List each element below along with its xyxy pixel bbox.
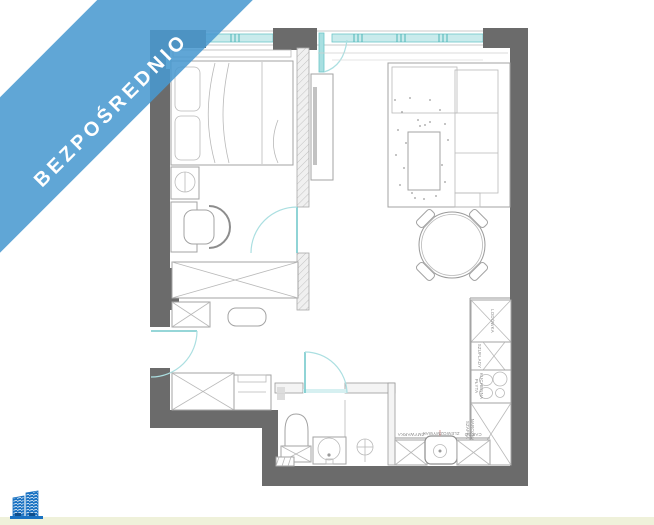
hall-partition <box>297 253 309 310</box>
fridge-label: LODÓWKA <box>490 309 495 333</box>
bathroom-wall-side <box>388 383 395 465</box>
bathroom-wall-box <box>277 387 285 393</box>
dining-set <box>415 208 489 282</box>
washbasin <box>313 437 346 464</box>
hallway <box>172 302 271 410</box>
living-room <box>388 63 510 282</box>
kitchen-bottom-run: ZMYWARKA ZLEWOZMYWAK CARGO <box>395 430 490 465</box>
sink-label: ZLEWOZMYWAK <box>423 431 460 436</box>
hall-dresser <box>234 375 271 410</box>
dishwasher-label: ZMYWARKA <box>398 432 425 437</box>
kitchen-sink: ZLEWOZMYWAK <box>423 430 460 464</box>
fridge: LODÓWKA <box>471 300 511 342</box>
screenshot-stage: LODÓWKA SZUFLADY PŁYTA KUCHENNA SZAFKA N… <box>0 0 654 525</box>
drawers-cabinet: SZUFLADY <box>471 342 511 370</box>
buildings-logo <box>9 487 49 521</box>
hall-wardrobe <box>172 373 234 410</box>
hall-cabinet-small <box>172 302 210 327</box>
coffee-table <box>408 132 440 190</box>
toilet <box>281 414 311 462</box>
cargo-label: CARGO <box>464 432 481 437</box>
dishwasher: ZMYWARKA <box>395 432 427 465</box>
nightstand <box>171 167 199 199</box>
hall-bench <box>228 308 266 326</box>
bedroom-door <box>251 207 297 253</box>
desk-and-chair <box>171 202 230 252</box>
bathroom-wall-box <box>277 394 285 400</box>
double-bed <box>171 61 293 165</box>
tv-unit <box>311 74 333 180</box>
page-bottom-strip <box>0 517 654 525</box>
hob: PŁYTA KUCHENNA <box>471 370 511 403</box>
bathroom-door <box>303 352 347 393</box>
corner-sofa <box>388 63 510 207</box>
bedroom-wardrobe <box>172 262 298 298</box>
bathroom <box>276 387 373 466</box>
tv-screen <box>313 87 317 165</box>
hob-label-2: KUCHENNA <box>479 373 484 399</box>
bathroom-radiator <box>276 457 294 466</box>
livingroom-window <box>332 34 483 42</box>
building-towers <box>10 491 43 519</box>
shower-head-symbol <box>357 439 373 462</box>
bedroom <box>171 50 298 298</box>
drawers-label: SZUFLADY <box>477 344 482 369</box>
bedroom-living-partition <box>297 48 309 207</box>
hob-label-1: PŁYTA <box>474 379 479 394</box>
bathroom-wall-right <box>345 383 395 393</box>
